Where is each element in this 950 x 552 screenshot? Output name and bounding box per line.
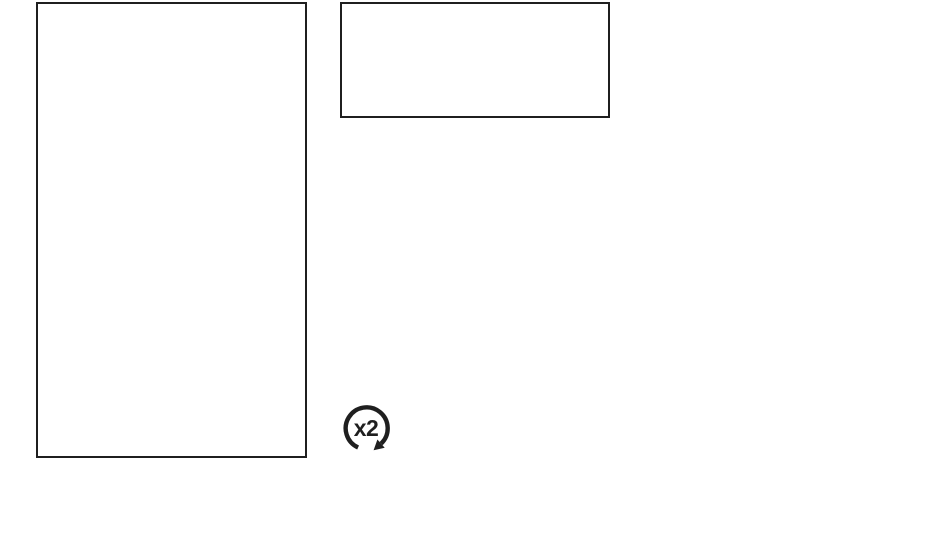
wide-frame bbox=[340, 2, 610, 118]
loop-count-label: x2 bbox=[354, 415, 379, 441]
repeat-x2-icon: x2 bbox=[339, 401, 395, 457]
storyboard-canvas: x2 bbox=[0, 0, 950, 552]
tall-frame bbox=[36, 2, 307, 458]
